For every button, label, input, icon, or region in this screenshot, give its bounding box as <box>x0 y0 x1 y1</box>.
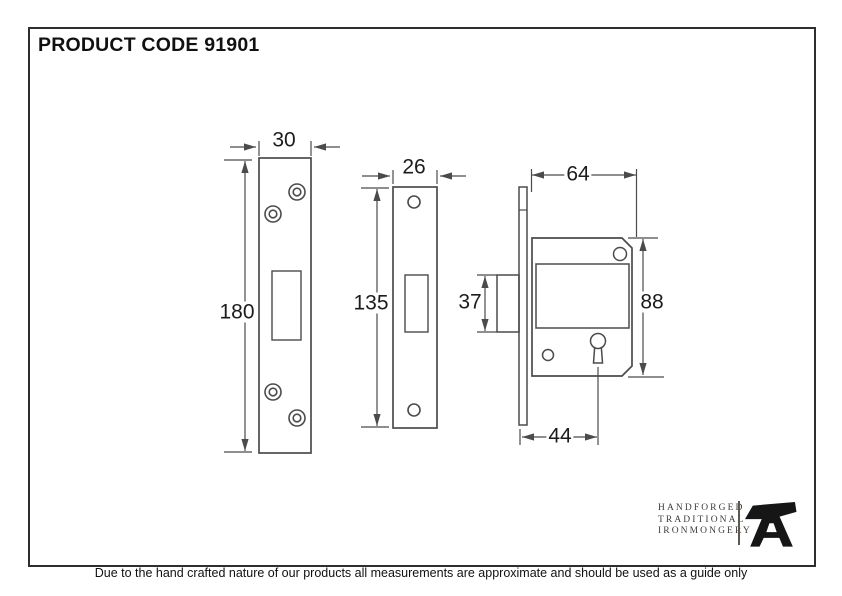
page: PRODUCT CODE 91901 <box>0 0 842 596</box>
lock-case-hole-top <box>614 248 627 261</box>
faceplate-screw-holes <box>408 196 420 416</box>
dim-label-lock-height: 88 <box>638 292 665 313</box>
lock-body-drawing <box>477 169 664 445</box>
dim-label-keyhole-backset: 44 <box>546 426 573 447</box>
faceplate-outline <box>393 187 437 428</box>
deadbolt <box>497 275 519 332</box>
dim-label-lock-width: 64 <box>564 164 591 185</box>
lock-body-dimension-lines <box>477 169 664 445</box>
strike-plate-drawing <box>224 141 340 453</box>
dim-label-strike-height: 180 <box>217 302 256 323</box>
brand-logo: HANDFORGED TRADITIONAL IRONMONGERY <box>648 494 806 552</box>
lock-faceplate-edge <box>519 187 527 425</box>
disclaimer-text: Due to the hand crafted nature of our pr… <box>0 566 842 580</box>
lock-case-outline <box>532 238 632 376</box>
dim-label-bolt-height: 37 <box>456 292 483 313</box>
dim-label-faceplate-height: 135 <box>351 293 390 314</box>
lock-case-hole-bottom <box>543 350 554 361</box>
lock-case-inner-panel <box>536 264 629 328</box>
strike-plate-outline <box>259 158 311 453</box>
strike-plate-bolt-cutout <box>272 271 301 340</box>
strike-plate-dimension-lines <box>224 141 340 452</box>
faceplate-bolt-cutout <box>405 275 428 332</box>
keyhole-icon <box>591 334 606 364</box>
logo-divider <box>738 501 740 545</box>
strike-plate-screw-holes <box>265 184 305 426</box>
anvil-icon <box>745 497 797 549</box>
dim-label-strike-width: 30 <box>270 130 297 151</box>
dim-label-faceplate-width: 26 <box>400 157 427 178</box>
